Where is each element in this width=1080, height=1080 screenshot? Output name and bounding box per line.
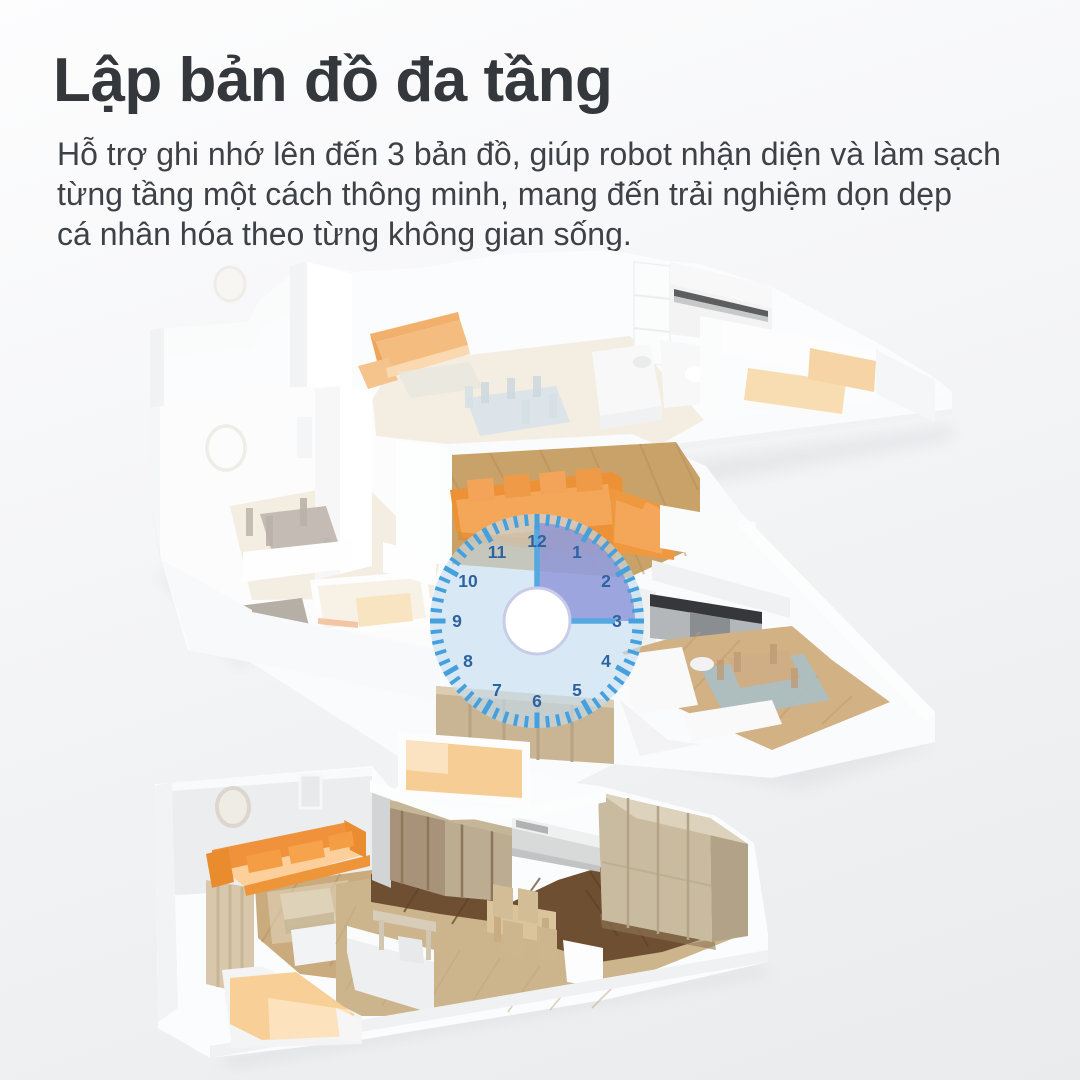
- svg-text:12: 12: [527, 531, 547, 551]
- svg-text:9: 9: [452, 611, 462, 631]
- svg-text:10: 10: [458, 571, 478, 591]
- svg-text:1: 1: [572, 542, 582, 562]
- svg-text:2: 2: [601, 571, 611, 591]
- svg-text:8: 8: [463, 651, 473, 671]
- svg-text:7: 7: [492, 680, 502, 700]
- svg-text:5: 5: [572, 680, 582, 700]
- svg-text:3: 3: [612, 611, 622, 631]
- svg-text:6: 6: [532, 691, 542, 711]
- svg-text:4: 4: [601, 651, 611, 671]
- svg-text:11: 11: [488, 542, 507, 562]
